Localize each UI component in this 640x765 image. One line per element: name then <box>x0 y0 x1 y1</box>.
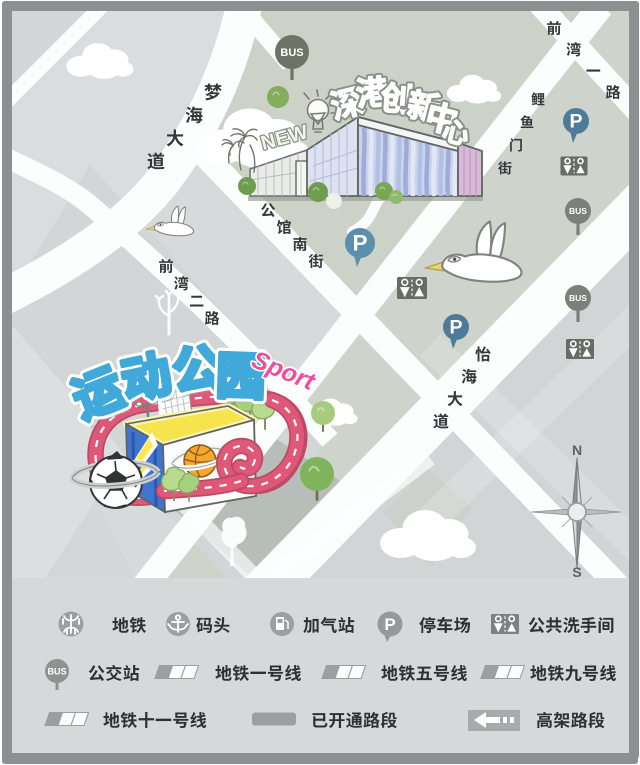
svg-text:BUS: BUS <box>569 293 587 303</box>
svg-text:S: S <box>572 564 581 580</box>
svg-text:BUS: BUS <box>569 206 587 216</box>
svg-text:BUS: BUS <box>280 47 303 59</box>
svg-text:P: P <box>352 231 367 256</box>
svg-text:P: P <box>569 111 582 133</box>
svg-text:N: N <box>572 442 582 458</box>
svg-text:BUS: BUS <box>47 667 66 677</box>
svg-text:P: P <box>384 615 395 634</box>
svg-text:P: P <box>449 317 462 339</box>
